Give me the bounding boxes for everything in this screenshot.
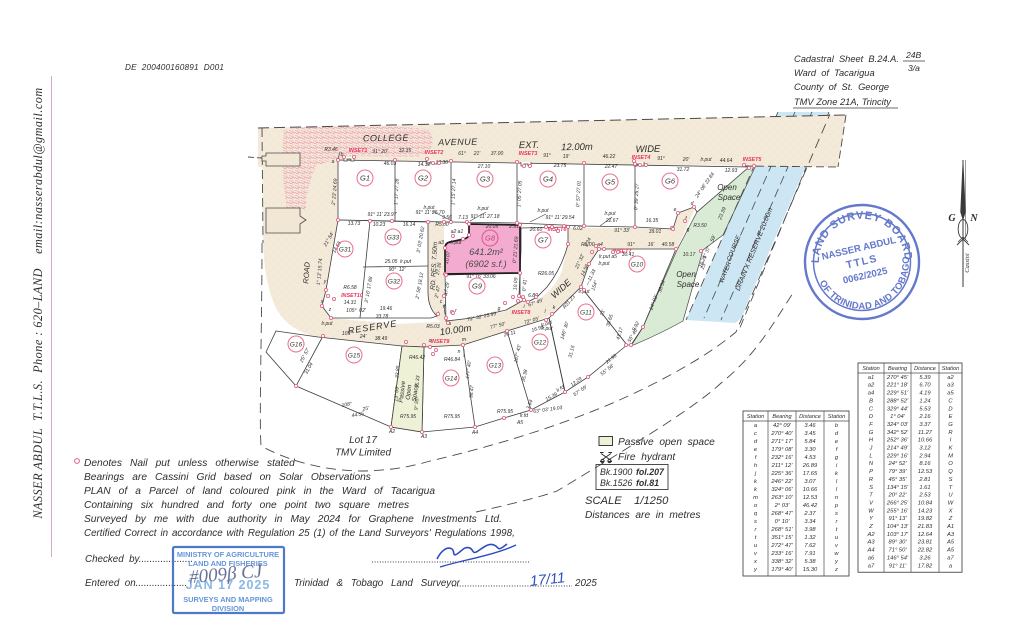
svg-text:INSET2: INSET2 <box>425 150 444 156</box>
svg-text:G7: G7 <box>538 236 549 245</box>
svg-text:9° 55': 9° 55' <box>413 396 420 410</box>
svg-text:e: e <box>674 207 677 213</box>
svg-text:19.82: 19.82 <box>918 516 933 522</box>
svg-text:INSET7: INSET7 <box>613 249 633 255</box>
svg-text:G9: G9 <box>472 282 483 291</box>
svg-text:Bearings are Cassini Grid: Bearings are Cassini Grid based on Solar… <box>84 472 371 483</box>
svg-text:A5: A5 <box>946 540 955 546</box>
svg-text:351° 15': 351° 15' <box>771 535 793 541</box>
svg-text:D: D <box>948 406 952 412</box>
svg-text:35.33: 35.33 <box>414 375 421 388</box>
svg-text:R6.58: R6.58 <box>343 285 357 291</box>
svg-text:14.23: 14.23 <box>918 508 933 514</box>
svg-text:a3: a3 <box>438 240 444 246</box>
svg-text:lr.put: lr.put <box>322 321 334 327</box>
svg-text:Bearing: Bearing <box>888 366 908 372</box>
svg-text:A3: A3 <box>946 532 955 538</box>
svg-text:71° 50': 71° 50' <box>889 548 908 554</box>
svg-text:22.82: 22.82 <box>917 548 933 554</box>
svg-text:Distance: Distance <box>914 366 936 372</box>
svg-text:272° 47': 272° 47' <box>770 543 793 549</box>
svg-text:12.53: 12.53 <box>918 469 933 475</box>
svg-text:D: D <box>869 414 873 420</box>
svg-text:270° 45': 270° 45' <box>886 375 909 381</box>
svg-text:19': 19' <box>563 154 571 160</box>
svg-text:91° 11' 27.18: 91° 11' 27.18 <box>471 214 500 220</box>
svg-text:A4: A4 <box>471 430 478 436</box>
svg-text:Cassini: Cassini <box>964 253 971 273</box>
svg-text:County of St. George: County of St. George <box>794 82 889 92</box>
svg-text:G8: G8 <box>485 234 496 243</box>
svg-text:G14: G14 <box>445 376 458 383</box>
svg-text:(6902 s.f.): (6902 s.f.) <box>465 259 506 269</box>
svg-text:40.58: 40.58 <box>662 242 675 248</box>
svg-text:91° 11': 91° 11' <box>889 563 907 569</box>
svg-text:2.81: 2.81 <box>918 477 930 483</box>
svg-text:Ward of Tacarigua: Ward of Tacarigua <box>794 68 875 78</box>
svg-text:a7: a7 <box>868 563 875 569</box>
svg-text:SURVEYS AND MAPPING: SURVEYS AND MAPPING <box>183 595 273 604</box>
svg-text:38.49: 38.49 <box>375 336 388 342</box>
svg-text:A2: A2 <box>388 429 395 435</box>
svg-text:Open: Open <box>717 183 737 192</box>
svg-text:91°: 91° <box>543 153 551 159</box>
svg-text:G: G <box>869 430 874 436</box>
svg-text:MINISTRY OF AGRICULTURE: MINISTRY OF AGRICULTURE <box>177 550 279 559</box>
svg-text:Station: Station <box>828 414 845 420</box>
svg-text:44.64: 44.64 <box>720 158 733 164</box>
svg-text:lr.put: lr.put <box>605 211 617 217</box>
svg-text:11.27: 11.27 <box>918 430 933 436</box>
svg-text:338° 32': 338° 32' <box>771 559 793 565</box>
svg-text:263° 10': 263° 10' <box>770 495 793 501</box>
svg-text:1.24: 1.24 <box>919 398 930 404</box>
svg-text:Station: Station <box>862 366 879 372</box>
svg-text:91° 20': 91° 20' <box>372 149 389 155</box>
svg-text:252° 36': 252° 36' <box>886 438 909 444</box>
svg-text:3.45: 3.45 <box>804 431 816 437</box>
svg-text:15.30: 15.30 <box>803 567 818 573</box>
svg-text:32.35: 32.35 <box>399 148 412 154</box>
svg-text:Trinidad & Tobago Land Sur: Trinidad & Tobago Land Surveyor <box>294 578 461 589</box>
svg-text:M: M <box>948 453 953 459</box>
svg-text:2° 03': 2° 03' <box>774 503 791 509</box>
svg-text:3.37: 3.37 <box>919 422 931 428</box>
svg-text:25.05 lr.put: 25.05 lr.put <box>384 259 412 265</box>
svg-text:A3: A3 <box>866 540 875 546</box>
svg-text:INSET10: INSET10 <box>341 293 363 299</box>
svg-text:7.91: 7.91 <box>804 551 815 557</box>
svg-text:233° 16': 233° 16' <box>770 551 793 557</box>
svg-text:288° 52': 288° 52' <box>886 398 909 404</box>
svg-text:21.83: 21.83 <box>917 524 933 530</box>
svg-text:F: F <box>869 422 873 428</box>
svg-text:232° 16': 232° 16' <box>770 455 793 461</box>
svg-text:R75.95: R75.95 <box>400 414 416 420</box>
svg-text:INSET5: INSET5 <box>743 157 763 163</box>
svg-text:n: n <box>458 349 461 355</box>
svg-text:17.82: 17.82 <box>918 563 933 569</box>
svg-text:R5.03: R5.03 <box>426 324 440 330</box>
svg-text:Space: Space <box>677 280 700 289</box>
svg-text:24° 52': 24° 52' <box>888 461 908 467</box>
svg-text:246° 22': 246° 22' <box>770 479 793 485</box>
svg-text:J: J <box>869 446 873 452</box>
svg-text:a3: a3 <box>947 383 954 389</box>
svg-text:5.84: 5.84 <box>804 439 815 445</box>
svg-text:INSET8: INSET8 <box>512 310 531 316</box>
svg-text:6.70: 6.70 <box>919 383 931 389</box>
svg-text:c: c <box>754 431 757 437</box>
svg-text:lr.fd: lr.fd <box>520 413 528 419</box>
svg-text:271° 17': 271° 17' <box>770 439 793 445</box>
svg-text:33.85: 33.85 <box>394 365 401 378</box>
svg-text:R75.95: R75.95 <box>444 414 460 420</box>
svg-text:a: a <box>332 159 335 165</box>
svg-text:z: z <box>834 567 838 573</box>
svg-text:m: m <box>753 495 758 501</box>
svg-text:2.53: 2.53 <box>918 493 931 499</box>
svg-text:12.93: 12.93 <box>725 168 738 174</box>
svg-text:31.72: 31.72 <box>677 167 690 173</box>
svg-text:179° 40': 179° 40' <box>771 567 793 573</box>
svg-text:17.65: 17.65 <box>803 471 818 477</box>
svg-text:a7: a7 <box>947 555 954 561</box>
svg-text:4.53: 4.53 <box>804 455 816 461</box>
svg-text:24B: 24B <box>905 50 922 60</box>
svg-text:Distance: Distance <box>799 414 821 420</box>
svg-text:1.32: 1.32 <box>804 535 816 541</box>
svg-text:lr.put: lr.put <box>542 326 554 332</box>
svg-text:R3.46: R3.46 <box>324 147 338 153</box>
svg-text:105°: 105° <box>342 331 352 337</box>
svg-text:Bk.1526: Bk.1526 <box>600 478 632 488</box>
svg-text:5.38: 5.38 <box>804 559 816 565</box>
svg-text:g: g <box>687 227 690 233</box>
svg-text:Fire hydrant: Fire hydrant <box>618 452 676 463</box>
svg-text:R5.00: R5.00 <box>435 222 449 228</box>
svg-text:61°: 61° <box>458 151 466 157</box>
svg-text:W: W <box>948 501 954 507</box>
svg-text:Q: Q <box>948 469 953 475</box>
svg-text:S: S <box>869 485 873 491</box>
svg-text:B: B <box>869 398 873 404</box>
svg-text:39.01: 39.01 <box>649 229 662 235</box>
svg-text:G33: G33 <box>387 235 400 242</box>
svg-text:641.2m²: 641.2m² <box>469 247 504 257</box>
svg-text:s: s <box>835 511 838 517</box>
svg-text:0° 10': 0° 10' <box>775 519 791 525</box>
svg-text:20° 22': 20° 22' <box>888 493 908 499</box>
svg-text:a6: a6 <box>868 555 875 561</box>
svg-text:91° 11' 23.97: 91° 11' 23.97 <box>368 212 397 218</box>
svg-text:G: G <box>948 422 953 428</box>
svg-text:6.02: 6.02 <box>573 226 583 232</box>
svg-text:Denotes Nail put unless ot: Denotes Nail put unless otherwise stated <box>84 458 295 469</box>
svg-text:229° 51': 229° 51' <box>886 391 909 397</box>
svg-text:2.94: 2.94 <box>918 453 930 459</box>
svg-text:h: h <box>754 463 757 469</box>
svg-text:10.84: 10.84 <box>918 501 933 507</box>
svg-text:O: O <box>948 461 953 467</box>
svg-text:g: g <box>498 306 501 312</box>
svg-text:134° 15': 134° 15' <box>887 485 909 491</box>
svg-text:0° 41': 0° 41' <box>521 277 528 291</box>
svg-text:Bk.1900: Bk.1900 <box>600 467 632 477</box>
svg-text:91° 33': 91° 33' <box>614 228 631 234</box>
svg-text:G4: G4 <box>543 175 553 184</box>
svg-text:214° 49': 214° 49' <box>886 446 909 452</box>
svg-text:12.00m: 12.00m <box>561 142 593 154</box>
svg-text:16': 16' <box>648 242 656 248</box>
svg-text:229° 16': 229° 16' <box>886 453 909 459</box>
svg-text:L: L <box>869 453 872 459</box>
svg-text:E: E <box>949 414 953 420</box>
svg-text:G3: G3 <box>480 175 491 184</box>
svg-text:20.05: 20.05 <box>485 224 499 230</box>
svg-text:Lot 17: Lot 17 <box>349 435 377 446</box>
svg-text:5.53: 5.53 <box>919 406 931 412</box>
svg-text:A5: A5 <box>946 548 955 554</box>
svg-text:342° 52': 342° 52' <box>887 430 909 436</box>
svg-text:lr.put: lr.put <box>424 205 436 211</box>
svg-text:270° 40': 270° 40' <box>770 431 793 437</box>
svg-text:105° 02': 105° 02' <box>346 308 367 314</box>
svg-text:146° 54': 146° 54' <box>887 555 909 561</box>
svg-text:TMV Zone 21A, Trincity: TMV Zone 21A, Trincity <box>794 97 892 107</box>
svg-text:329° 44': 329° 44' <box>887 406 909 412</box>
svg-text:255° 16': 255° 16' <box>886 508 909 514</box>
svg-text:268° 47': 268° 47' <box>770 511 793 517</box>
svg-text:R26.05: R26.05 <box>538 271 554 277</box>
svg-text:42° 09': 42° 09' <box>773 423 792 429</box>
svg-text:14.31: 14.31 <box>344 300 357 306</box>
svg-text:G6: G6 <box>665 177 676 186</box>
svg-text:211° 12': 211° 12' <box>771 463 794 469</box>
svg-text:G15: G15 <box>348 353 361 360</box>
svg-text:324° 06': 324° 06' <box>771 487 793 493</box>
svg-text:14.32: 14.32 <box>418 162 431 168</box>
svg-text:R46.42: R46.42 <box>409 355 425 361</box>
svg-text:24': 24' <box>359 334 368 340</box>
svg-text:Passive open space: Passive open space <box>618 437 715 448</box>
svg-text:3.98: 3.98 <box>804 527 816 533</box>
svg-text:R46.84: R46.84 <box>444 357 460 363</box>
svg-text:S: S <box>949 477 953 483</box>
svg-text:ROAD: ROAD <box>301 261 312 284</box>
svg-text:G13: G13 <box>489 363 502 370</box>
svg-text:R3.50: R3.50 <box>693 223 707 229</box>
svg-text:A1: A1 <box>946 524 954 530</box>
svg-text:INSET3: INSET3 <box>519 151 538 157</box>
svg-text:PLAN of a Parcel of land: PLAN of a Parcel of land coloured pink i… <box>84 486 435 497</box>
svg-text:Z: Z <box>948 516 953 522</box>
svg-text:37.00: 37.00 <box>491 151 504 157</box>
svg-text:a2: a2 <box>947 375 954 381</box>
svg-text:12.53: 12.53 <box>803 495 818 501</box>
svg-text:91° 13': 91° 13' <box>889 516 908 522</box>
svg-text:91°: 91° <box>657 156 665 162</box>
svg-text:Z: Z <box>868 524 873 530</box>
svg-text:N: N <box>969 213 978 224</box>
svg-text:45° 35': 45° 35' <box>889 477 908 483</box>
svg-text:G: G <box>948 213 956 224</box>
svg-text:225° 36': 225° 36' <box>770 471 793 477</box>
svg-text:INSET9: INSET9 <box>431 339 450 345</box>
svg-text:10.23: 10.23 <box>373 222 386 228</box>
svg-text:Distances are in metres: Distances are in metres <box>585 510 701 521</box>
svg-text:NASSER ABDUL T.T.L.S. Phone: NASSER ABDUL T.T.L.S. Phone : 620–LAND e… <box>31 87 45 519</box>
svg-text:y: y <box>323 279 327 285</box>
svg-text:G2: G2 <box>418 174 429 183</box>
svg-text:27.10: 27.10 <box>477 164 491 170</box>
svg-text:13.73: 13.73 <box>348 221 361 227</box>
svg-text:46.22: 46.22 <box>603 154 616 160</box>
svg-text:R75.95: R75.95 <box>497 409 513 415</box>
svg-text:2.16: 2.16 <box>918 414 931 420</box>
svg-text:22.47: 22.47 <box>604 164 618 170</box>
svg-text:Station: Station <box>747 414 764 420</box>
svg-text:268° 51': 268° 51' <box>770 527 793 533</box>
svg-text:a5: a5 <box>947 391 954 397</box>
svg-text:324° 03': 324° 03' <box>887 422 909 428</box>
svg-text:16.14: 16.14 <box>403 222 416 228</box>
svg-text:20': 20' <box>682 157 691 163</box>
svg-text:lr.put: lr.put <box>451 240 463 246</box>
svg-text:46.42: 46.42 <box>803 503 818 509</box>
svg-text:INSET1: INSET1 <box>349 148 368 154</box>
svg-text:lr.put: lr.put <box>538 208 550 214</box>
svg-text:COLLEGE: COLLEGE <box>363 133 410 144</box>
svg-text:10.17: 10.17 <box>683 252 696 258</box>
svg-text:lr.put: lr.put <box>478 206 490 212</box>
svg-text:W: W <box>868 508 874 514</box>
svg-text:n: n <box>835 495 838 501</box>
svg-text:91° 11' 29.54: 91° 11' 29.54 <box>546 215 575 221</box>
svg-text:3.26: 3.26 <box>919 555 931 561</box>
svg-text:G12: G12 <box>534 340 547 347</box>
svg-text:21': 21' <box>473 151 482 157</box>
svg-text:m: m <box>462 337 466 343</box>
svg-text:lr.put: lr.put <box>599 261 611 267</box>
svg-text:23.75: 23.75 <box>553 163 567 169</box>
svg-text:A2: A2 <box>866 532 875 538</box>
svg-text:A4: A4 <box>866 548 874 554</box>
svg-text:Cadastral Sheet B.24.A.: Cadastral Sheet B.24.A. <box>794 54 899 64</box>
svg-text:s: s <box>754 519 757 525</box>
svg-text:2.37: 2.37 <box>803 511 816 517</box>
svg-text:A5: A5 <box>516 420 523 426</box>
svg-text:Space: Space <box>718 193 741 202</box>
svg-text:179° 08': 179° 08' <box>771 447 793 453</box>
svg-text:Station: Station <box>942 366 959 372</box>
svg-text:3.46: 3.46 <box>804 423 816 429</box>
svg-text:DE 200400160891 D001: DE 200400160891 D001 <box>125 63 224 72</box>
svg-text:221° 18': 221° 18' <box>886 383 909 389</box>
svg-text:EXT.: EXT. <box>519 140 539 151</box>
svg-text:DIVISION: DIVISION <box>212 604 244 613</box>
svg-text:SCALE 1/1250: SCALE 1/1250 <box>585 495 669 507</box>
svg-text:fol.207: fol.207 <box>636 467 665 477</box>
svg-text:10.09: 10.09 <box>512 277 519 290</box>
svg-text:lr.put: lr.put <box>701 157 713 163</box>
svg-text:z: z <box>328 307 332 313</box>
svg-text:a1: a1 <box>868 375 874 381</box>
svg-text:fol.81: fol.81 <box>636 478 659 488</box>
svg-text:3.34: 3.34 <box>804 519 815 525</box>
svg-text:a2: a2 <box>868 383 875 389</box>
svg-text:19.46: 19.46 <box>380 306 393 312</box>
svg-text:3.07: 3.07 <box>804 479 816 485</box>
svg-text:1.61: 1.61 <box>919 485 930 491</box>
svg-text:3/a: 3/a <box>908 63 920 73</box>
svg-text:4.19: 4.19 <box>919 391 931 397</box>
svg-text:266° 25': 266° 25' <box>886 501 909 507</box>
svg-text:8.16: 8.16 <box>919 461 931 467</box>
svg-text:G16: G16 <box>290 342 303 349</box>
svg-text:Containing six hundred and: Containing six hundred and forty one poi… <box>84 500 409 511</box>
svg-text:79° 39': 79° 39' <box>889 469 908 475</box>
svg-text:33.78: 33.78 <box>376 314 389 320</box>
svg-text:10.66: 10.66 <box>803 487 818 493</box>
svg-text:5.39: 5.39 <box>919 375 931 381</box>
svg-text:12.64: 12.64 <box>918 532 933 538</box>
svg-text:16.35: 16.35 <box>646 218 659 224</box>
svg-text:T: T <box>949 485 953 491</box>
svg-text:26.89: 26.89 <box>802 463 818 469</box>
svg-text:7.62: 7.62 <box>804 543 816 549</box>
svg-text:91°: 91° <box>627 242 635 248</box>
svg-text:23.81: 23.81 <box>917 540 933 546</box>
svg-text:1° 04': 1° 04' <box>890 414 906 420</box>
svg-text:89° 30': 89° 30' <box>889 540 908 546</box>
svg-text:G31: G31 <box>339 247 352 254</box>
svg-text:A3: A3 <box>420 434 427 440</box>
svg-text:G5: G5 <box>605 178 616 187</box>
svg-text:104° 13': 104° 13' <box>887 524 909 530</box>
svg-text:AVENUE: AVENUE <box>437 137 478 148</box>
svg-text:3.12: 3.12 <box>919 446 931 452</box>
svg-text:90° 12': 90° 12' <box>389 267 407 273</box>
svg-text:G11: G11 <box>580 310 592 317</box>
svg-text:T: T <box>869 493 873 499</box>
svg-text:WIDE: WIDE <box>635 144 661 155</box>
svg-text:G32: G32 <box>388 279 401 286</box>
svg-text:103° 17': 103° 17' <box>887 532 909 538</box>
svg-text:3.30: 3.30 <box>804 447 816 453</box>
svg-text:Open: Open <box>676 270 696 279</box>
svg-text:G10: G10 <box>631 262 644 269</box>
svg-text:2025: 2025 <box>574 578 597 589</box>
svg-text:a4: a4 <box>868 391 874 397</box>
svg-text:G1: G1 <box>360 174 370 183</box>
svg-text:Surveyed by me with due a: Surveyed by me with due authority in May… <box>84 514 502 525</box>
svg-text:10.66: 10.66 <box>918 438 933 444</box>
svg-text:P: P <box>869 469 873 475</box>
svg-text:Bearing: Bearing <box>772 414 792 420</box>
svg-text:TMV Limited: TMV Limited <box>335 448 392 459</box>
svg-text:Certified Correct in accordanc: Certified Correct in accordance with Reg… <box>84 528 515 539</box>
